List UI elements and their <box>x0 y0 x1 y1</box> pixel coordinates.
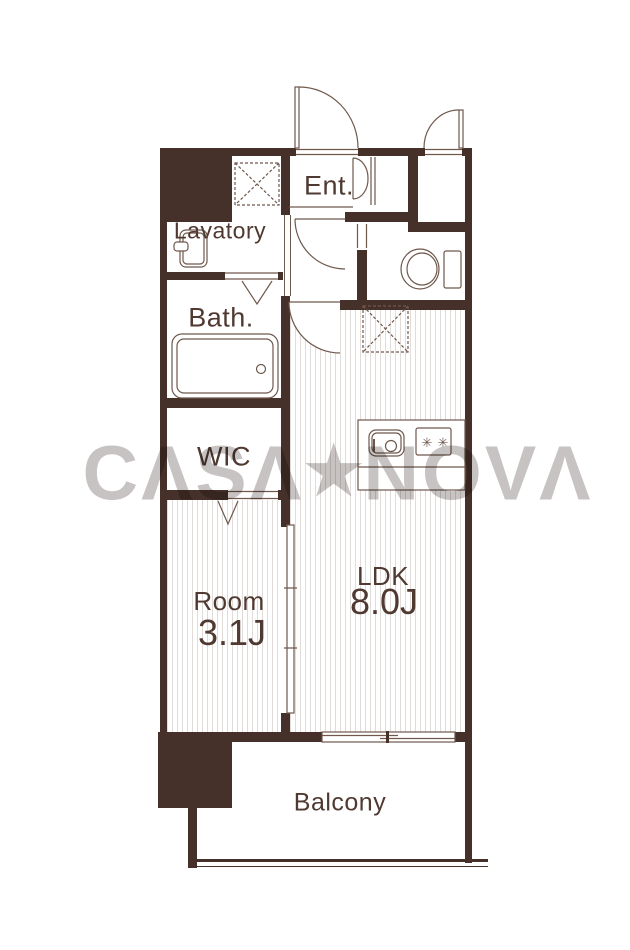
bathtub <box>172 334 278 398</box>
room-label-bath: Bath. <box>188 305 254 332</box>
room-size-ldk: 8.0J <box>350 584 418 620</box>
bath-threshold <box>225 272 278 280</box>
bath-folding-door <box>242 281 272 304</box>
ldk-door <box>289 302 340 353</box>
entrance-door <box>295 87 358 148</box>
room-label-ent: Ent. <box>304 173 354 200</box>
watermark-text-left: CΛSΛ <box>82 431 304 517</box>
star-icon: ★ <box>304 434 363 508</box>
door-jamb <box>290 215 291 296</box>
room-label-lavatory: Lavatory <box>174 220 266 243</box>
floor-plan: ✳ ✳ Lavatory Ent. <box>0 0 630 950</box>
room-size-bedroom: 3.1J <box>198 615 266 651</box>
balcony-window <box>322 731 455 743</box>
shoe-cabinet-folding-door <box>353 157 375 205</box>
room-label-balcony: Balcony <box>294 791 386 816</box>
watermark: CΛSΛ★NOVΛ <box>82 436 593 513</box>
service-door <box>424 110 463 148</box>
watermark-text-right: NOVΛ <box>363 431 593 517</box>
door-jamb <box>284 215 285 296</box>
toilet-door <box>358 224 367 248</box>
closet <box>363 306 408 352</box>
washer-space <box>235 163 279 205</box>
entrance-threshold <box>296 148 358 156</box>
room-label-bedroom: Room <box>193 588 264 614</box>
sliding-partition <box>284 525 297 713</box>
toilet-icon <box>401 249 461 289</box>
service-door-threshold <box>425 148 462 156</box>
hall-door <box>295 219 345 269</box>
